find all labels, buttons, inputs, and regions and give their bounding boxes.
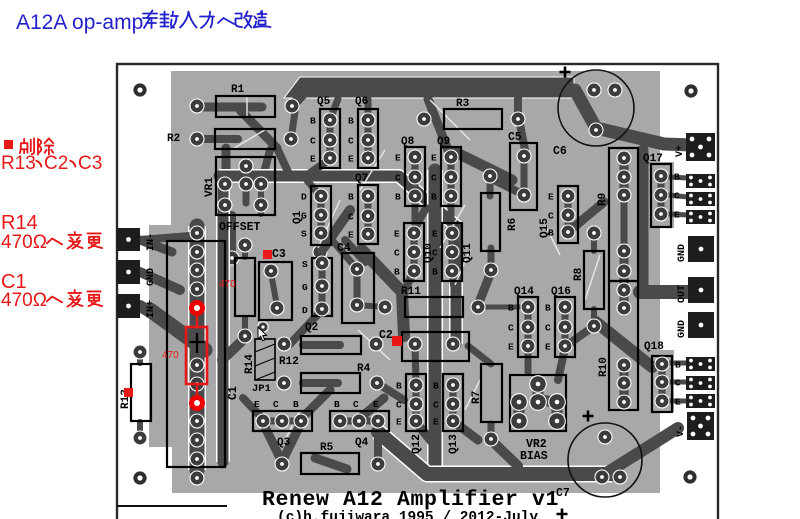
svg-text:Q16: Q16 xyxy=(551,286,571,298)
svg-text:C2: C2 xyxy=(379,329,393,342)
svg-text:470Ω: 470Ω xyxy=(1,290,47,311)
svg-text:IN-: IN- xyxy=(146,233,157,251)
svg-text:S: S xyxy=(301,229,307,240)
svg-text:Q5: Q5 xyxy=(317,96,331,108)
svg-text:R14: R14 xyxy=(1,212,38,234)
svg-text:C: C xyxy=(310,136,316,147)
svg-text:E: E xyxy=(675,397,681,408)
svg-text:B: B xyxy=(674,172,680,183)
svg-text:R9: R9 xyxy=(597,193,609,206)
svg-text:R3: R3 xyxy=(456,98,470,110)
svg-text:(c)h.fujiwara 1995 / 2012-July: (c)h.fujiwara 1995 / 2012-July xyxy=(277,510,538,519)
svg-text:Q12: Q12 xyxy=(411,434,423,454)
svg-text:R6: R6 xyxy=(507,218,519,231)
svg-text:E: E xyxy=(394,229,400,240)
svg-text:B: B xyxy=(433,381,439,392)
svg-text:R12: R12 xyxy=(279,356,299,368)
svg-text:B: B xyxy=(395,192,401,203)
svg-text:B: B xyxy=(508,303,514,314)
svg-text:R10: R10 xyxy=(598,357,610,377)
svg-text:D: D xyxy=(302,305,308,316)
svg-text:C: C xyxy=(394,248,400,259)
svg-text:B: B xyxy=(348,116,354,127)
svg-text:B: B xyxy=(396,381,402,392)
svg-text:R11: R11 xyxy=(401,286,421,298)
svg-text:B: B xyxy=(432,267,438,278)
svg-text:C: C xyxy=(432,248,438,259)
svg-text:E: E xyxy=(373,399,379,410)
svg-text:Q6: Q6 xyxy=(355,96,368,108)
svg-text:C: C xyxy=(675,378,681,389)
svg-text:Q3: Q3 xyxy=(277,437,291,449)
svg-text:A12A op-amp: A12A op-amp xyxy=(16,11,143,34)
svg-text:OUT: OUT xyxy=(677,285,688,303)
svg-text:B: B xyxy=(310,116,316,127)
svg-text:C: C xyxy=(273,399,279,410)
svg-text:E: E xyxy=(431,153,437,164)
svg-text:B: B xyxy=(394,267,400,278)
svg-text:C: C xyxy=(545,323,551,334)
svg-text:Q8: Q8 xyxy=(401,136,415,148)
svg-text:E: E xyxy=(254,399,260,410)
svg-text:V-: V- xyxy=(676,425,687,437)
svg-text:R5: R5 xyxy=(320,442,334,454)
svg-text:Q18: Q18 xyxy=(644,341,664,353)
svg-text:R13: R13 xyxy=(1,153,36,174)
svg-text:E: E xyxy=(395,153,401,164)
svg-text:E: E xyxy=(396,417,402,428)
svg-text:E: E xyxy=(508,342,514,353)
svg-text:D: D xyxy=(301,192,307,203)
svg-text:JP1: JP1 xyxy=(252,383,271,395)
svg-text:E: E xyxy=(545,342,551,353)
svg-text:Q1: Q1 xyxy=(292,210,304,224)
svg-text:B: B xyxy=(675,360,681,371)
svg-text:E: E xyxy=(348,230,354,241)
svg-text:C: C xyxy=(348,212,354,223)
svg-text:470: 470 xyxy=(162,350,179,361)
svg-text:C: C xyxy=(395,173,401,184)
svg-text:G: G xyxy=(302,282,308,293)
svg-text:C: C xyxy=(348,136,354,147)
svg-text:B: B xyxy=(293,399,299,410)
svg-text:Q7: Q7 xyxy=(355,173,368,185)
svg-text:E: E xyxy=(433,417,439,428)
svg-text:R2: R2 xyxy=(167,133,180,145)
svg-text:Q4: Q4 xyxy=(355,437,369,449)
svg-text:GND: GND xyxy=(677,320,688,338)
svg-text:C: C xyxy=(396,400,402,411)
svg-text:GND: GND xyxy=(677,244,688,262)
svg-text:R8: R8 xyxy=(573,267,585,281)
svg-text:BIAS: BIAS xyxy=(520,450,548,463)
svg-text:B: B xyxy=(545,303,551,314)
svg-text:R7: R7 xyxy=(471,391,483,404)
svg-text:E: E xyxy=(310,154,316,165)
svg-text:VR1: VR1 xyxy=(204,177,216,197)
svg-text:B: B xyxy=(334,399,340,410)
svg-text:C6: C6 xyxy=(553,145,567,158)
svg-text:R14: R14 xyxy=(244,354,256,374)
svg-text:Q9: Q9 xyxy=(437,136,450,148)
svg-text:470: 470 xyxy=(219,279,236,290)
svg-text:R4: R4 xyxy=(357,363,371,375)
svg-text:C: C xyxy=(674,191,680,202)
svg-text:Q15: Q15 xyxy=(539,218,551,238)
svg-text:IN+: IN+ xyxy=(146,300,157,318)
svg-text:C3: C3 xyxy=(272,248,286,261)
svg-text:V+: V+ xyxy=(675,145,686,157)
svg-text:C1: C1 xyxy=(227,386,240,400)
svg-text:E: E xyxy=(674,210,680,221)
svg-text:C: C xyxy=(508,323,514,334)
svg-text:470Ω: 470Ω xyxy=(1,232,47,253)
svg-text:C5: C5 xyxy=(508,131,522,144)
svg-text:Q17: Q17 xyxy=(643,153,663,165)
svg-text:Q11: Q11 xyxy=(462,243,474,263)
svg-text:E: E xyxy=(432,229,438,240)
svg-text:GND: GND xyxy=(146,268,157,286)
svg-text:S: S xyxy=(302,259,308,270)
svg-text:C: C xyxy=(433,400,439,411)
svg-text:C: C xyxy=(353,399,359,410)
svg-text:Renew A12 Amplifier v1: Renew A12 Amplifier v1 xyxy=(262,488,559,512)
svg-text:C4: C4 xyxy=(337,242,351,255)
svg-text:E: E xyxy=(348,154,354,165)
svg-text:C: C xyxy=(431,173,437,184)
svg-text:E: E xyxy=(548,192,554,203)
svg-text:Q14: Q14 xyxy=(514,286,534,298)
svg-text:R1: R1 xyxy=(231,84,245,96)
svg-text:Q2: Q2 xyxy=(305,322,318,334)
svg-text:OFFSET: OFFSET xyxy=(219,221,261,234)
svg-text:Q13: Q13 xyxy=(448,434,460,454)
svg-text:C2: C2 xyxy=(44,153,68,174)
svg-text:B: B xyxy=(348,192,354,203)
svg-text:B: B xyxy=(431,192,437,203)
svg-text:C3: C3 xyxy=(78,153,102,174)
